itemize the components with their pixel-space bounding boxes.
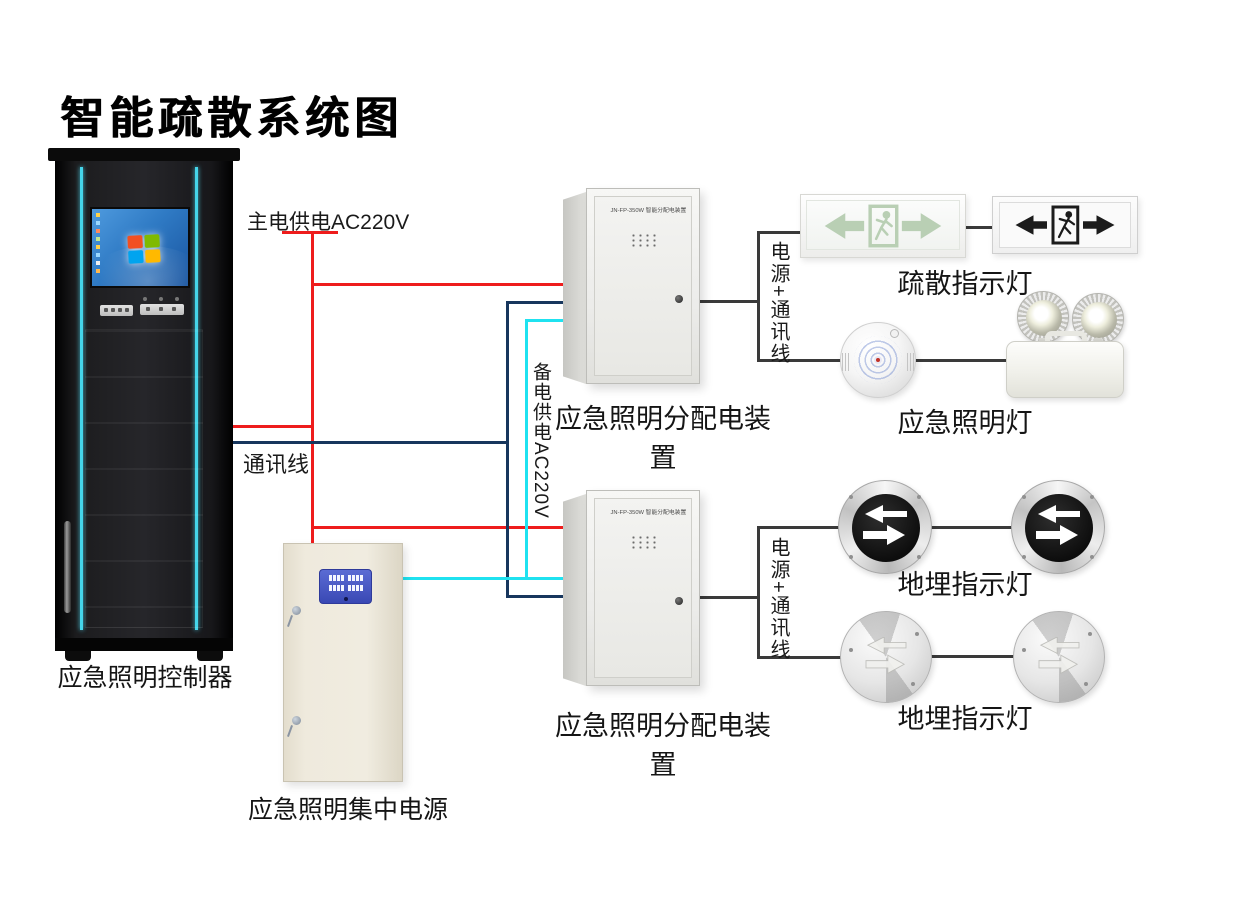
left-arrow-icon — [1041, 637, 1079, 653]
ground-light-link-line-2 — [930, 655, 1015, 658]
exit-sign-2 — [992, 196, 1138, 254]
power-supply-display-panel — [319, 569, 372, 604]
ground-light-arrows-icon — [1032, 505, 1084, 549]
main-power-label: 主电供电AC220V — [247, 206, 409, 236]
left-arrow-icon — [865, 505, 907, 523]
right-arrow-icon — [863, 525, 905, 545]
ground-light-arrows-icon — [1033, 637, 1085, 677]
comm-wire-vertical — [506, 301, 509, 598]
emergency-light-group-label: 应急照明灯 — [885, 401, 1045, 440]
cabinet-button-strip-2[interactable] — [140, 304, 184, 315]
comm-wire-to-box1 — [506, 301, 567, 304]
distribution-box-1-indicators — [630, 233, 656, 248]
distribution-box-2-door-inset — [594, 498, 692, 678]
group1-bus-line — [757, 231, 760, 362]
evacuation-system-diagram: 智能疏散系统图 主电供电AC220V 通讯线 备电供电AC220V 电源+通讯线… — [0, 0, 1260, 898]
ground-light-steel-1 — [840, 611, 932, 703]
group2-feed-line — [698, 596, 760, 599]
desktop-icons — [96, 213, 100, 273]
distribution-box-2-indicators — [630, 535, 656, 550]
emergency-light-link-line — [914, 359, 1008, 362]
left-arrow-icon — [825, 213, 864, 239]
ground-light-arrows-icon — [860, 637, 912, 677]
ceiling-light-center-led — [874, 356, 882, 364]
right-arrow-icon — [866, 655, 904, 673]
central-power-supply — [283, 543, 403, 782]
exit-sign-1 — [800, 194, 966, 258]
comm-wire-to-box2 — [506, 595, 567, 598]
central-power-label: 应急照明集中电源 — [243, 790, 453, 826]
emergency-lighting-controller-cabinet — [55, 148, 233, 663]
right-arrow-icon — [1039, 655, 1077, 673]
distribution-box-1-label: 应急照明分配电装置 — [548, 397, 778, 475]
left-arrow-icon — [1016, 215, 1048, 235]
ceiling-light-test-button[interactable] — [890, 329, 899, 338]
cabinet-door-handle[interactable] — [64, 521, 71, 613]
comm-wire-from-cabinet — [230, 441, 509, 444]
diagram-title: 智能疏散系统图 — [60, 82, 403, 146]
ground-light-link-line-1 — [930, 526, 1012, 529]
group1-top-branch — [757, 231, 804, 234]
ground-light-arrows-icon — [859, 505, 911, 549]
distribution-box-2-label: 应急照明分配电装置 — [548, 704, 778, 782]
group1-feed-line — [698, 300, 760, 303]
dual-light-body — [1006, 341, 1124, 398]
exit-sign-1-graphic — [808, 202, 958, 250]
backup-power-wire-to-box1 — [525, 319, 567, 322]
ground-light-black-2 — [1011, 480, 1105, 574]
power-comm-label-1: 电源+通讯线 — [764, 241, 793, 365]
ground-light-group-2-label: 地埋指示灯 — [885, 697, 1045, 736]
distribution-box-2: JN-FP-350W 智能分配电装置 — [563, 490, 703, 690]
ceiling-light-grill-right — [907, 353, 914, 371]
ground-light-steel-2 — [1013, 611, 1105, 703]
ceiling-light-grill-left — [842, 353, 849, 371]
cabinet-indicator-leds — [143, 297, 179, 301]
group2-bus-line — [757, 526, 760, 659]
cabinet-base — [55, 638, 233, 651]
backup-power-wire-from-power — [400, 577, 567, 580]
cabinet-button-strip-1[interactable] — [100, 305, 133, 316]
dual-light-lens-right — [1081, 302, 1117, 338]
cabinet-accent-line-left — [80, 167, 83, 630]
distribution-box-1-side — [563, 192, 586, 384]
right-arrow-icon — [1083, 215, 1115, 235]
main-power-wire-to-box2 — [311, 526, 567, 529]
distribution-box-1-door: JN-FP-350W 智能分配电装置 — [586, 188, 700, 384]
comm-line-label: 通讯线 — [243, 447, 309, 479]
right-arrow-icon — [902, 213, 941, 239]
power-supply-panel-button[interactable] — [344, 597, 348, 601]
distribution-box-2-side — [563, 494, 586, 686]
controller-screen[interactable] — [90, 207, 190, 288]
left-arrow-icon — [868, 637, 906, 653]
cabinet-glass-door — [85, 329, 203, 628]
distribution-box-2-door: JN-FP-350W 智能分配电装置 — [586, 490, 700, 686]
windows-logo-icon — [127, 234, 160, 264]
cabinet-body — [55, 161, 233, 638]
distribution-box-1-model-text: JN-FP-350W 智能分配电装置 — [611, 205, 676, 214]
running-man-icon — [876, 211, 891, 239]
controller-label: 应急照明控制器 — [38, 658, 252, 694]
distribution-box-1-lock[interactable] — [675, 295, 683, 303]
power-comm-label-2: 电源+通讯线 — [764, 537, 793, 661]
ceiling-emergency-light — [840, 322, 916, 398]
main-power-wire-to-box1 — [311, 283, 567, 286]
ground-light-group-1-label: 地埋指示灯 — [885, 563, 1045, 602]
exit-sign-link-line — [962, 226, 993, 229]
exit-sign-2-graphic — [1001, 204, 1129, 246]
distribution-box-1: JN-FP-350W 智能分配电装置 — [563, 188, 703, 388]
cabinet-top-cap — [48, 148, 240, 161]
main-power-wire-from-cabinet — [230, 425, 314, 428]
ground-light-black-1 — [838, 480, 932, 574]
right-arrow-icon — [1036, 525, 1078, 545]
running-man-icon — [1059, 211, 1074, 237]
distribution-box-2-model-text: JN-FP-350W 智能分配电装置 — [611, 507, 676, 516]
distribution-box-1-door-inset — [594, 196, 692, 376]
left-arrow-icon — [1038, 505, 1080, 523]
main-power-wire-vertical — [311, 231, 314, 546]
group2-top-branch — [757, 526, 842, 529]
power-supply-lock-top[interactable] — [292, 606, 301, 615]
power-supply-lock-bottom[interactable] — [292, 716, 301, 725]
distribution-box-2-lock[interactable] — [675, 597, 683, 605]
